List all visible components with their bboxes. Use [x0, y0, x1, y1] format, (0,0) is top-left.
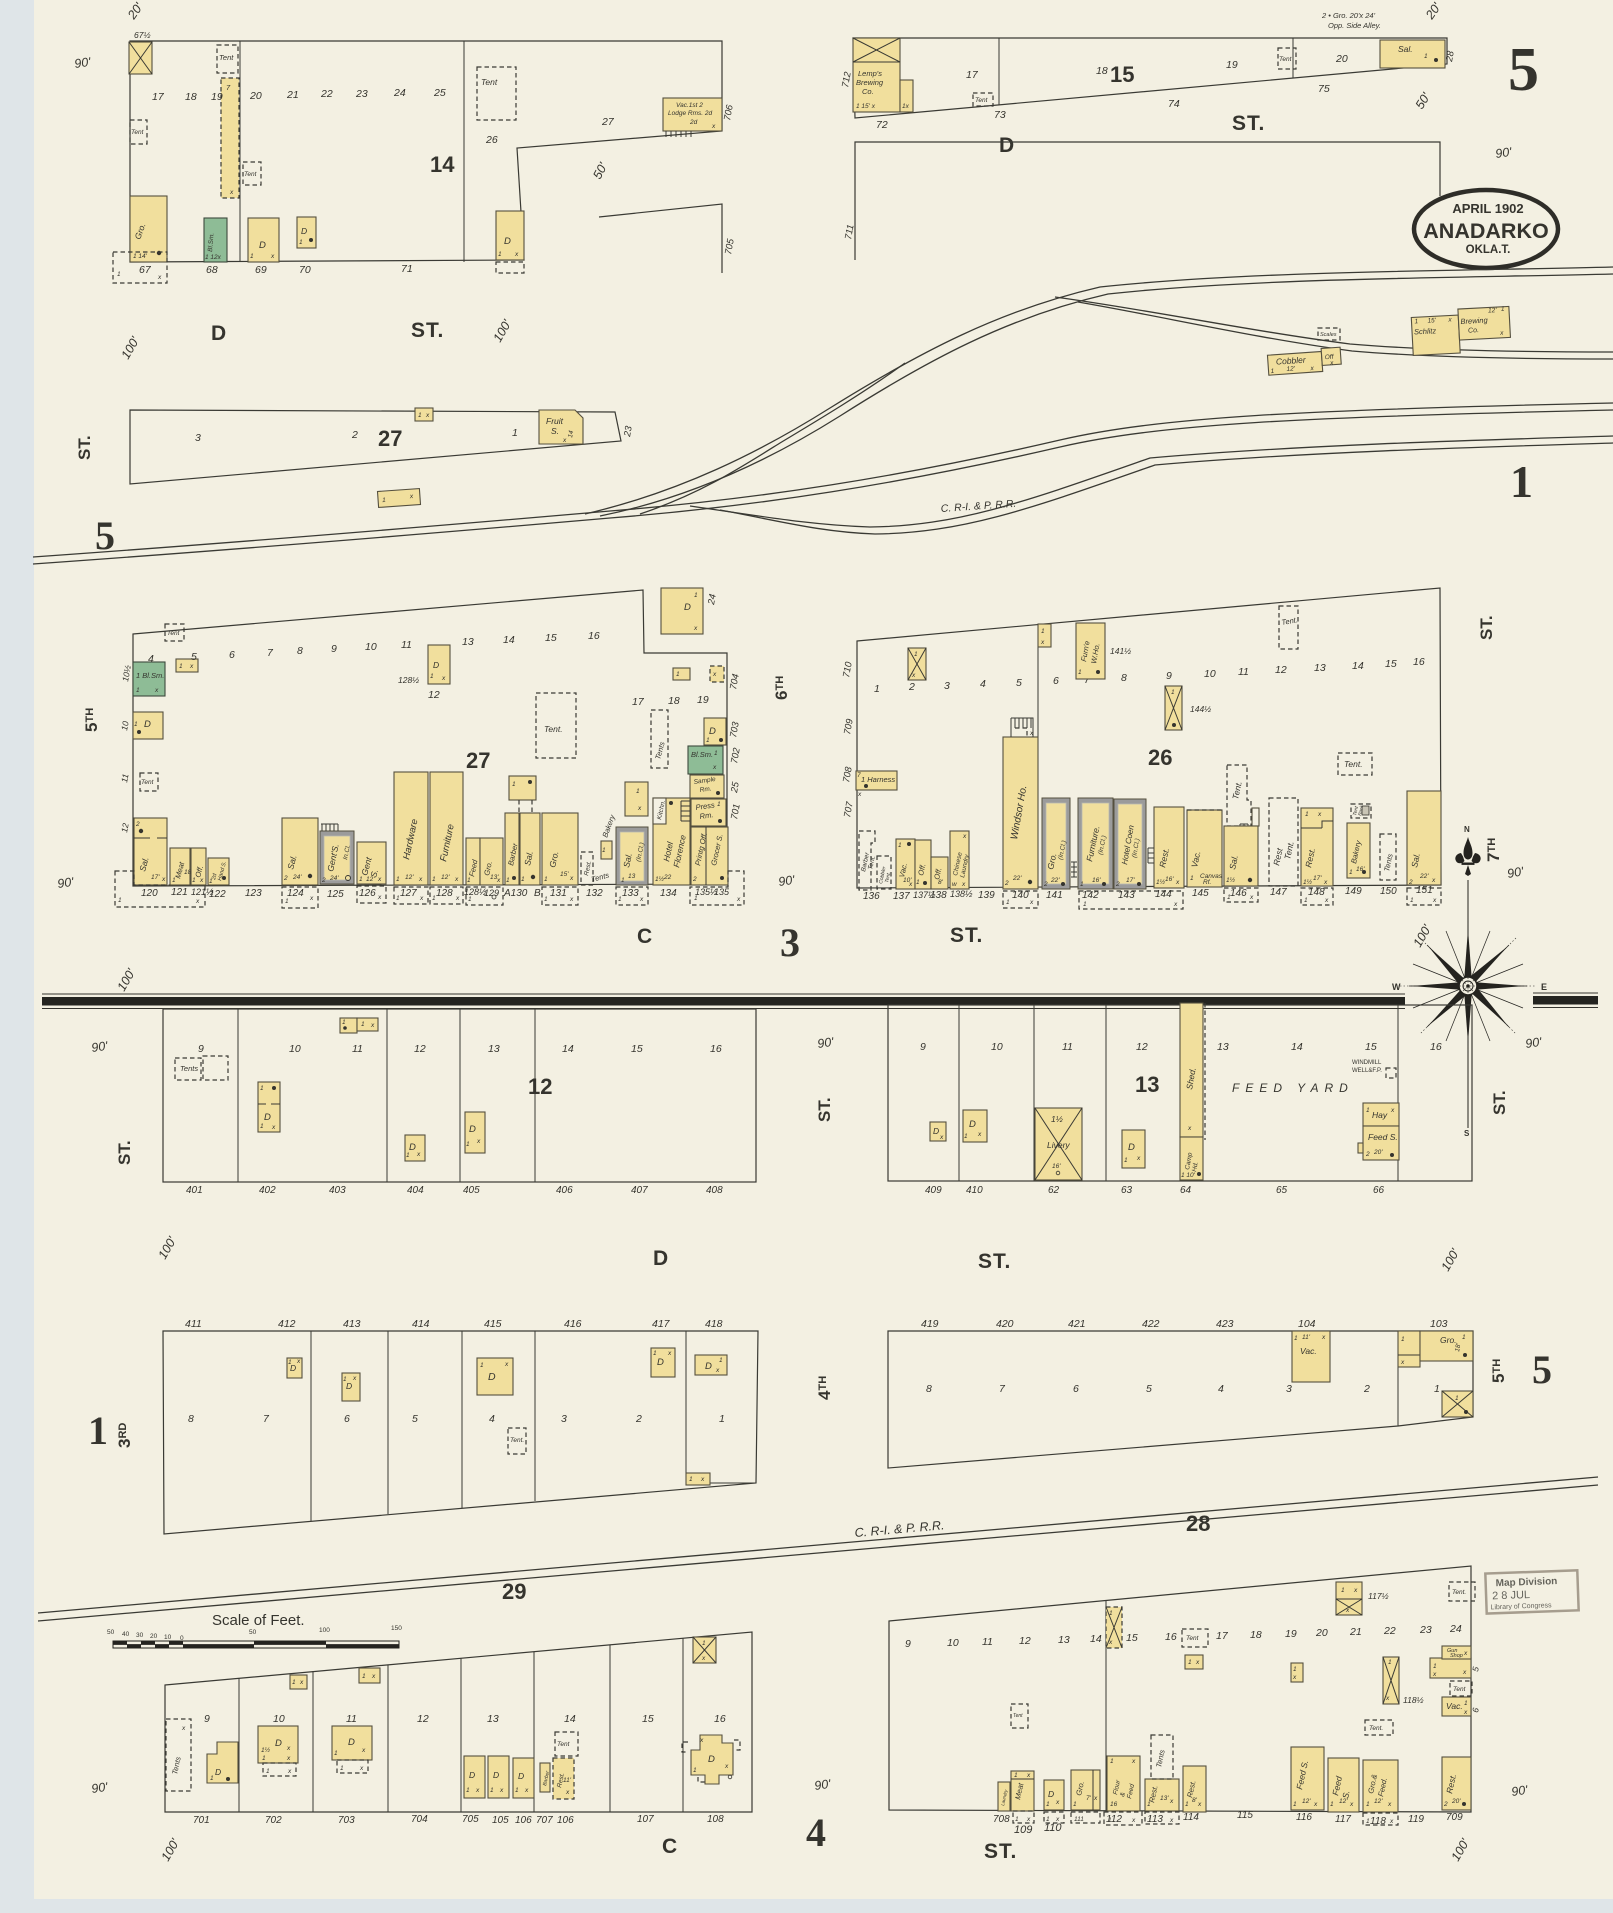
svg-text:1: 1	[1388, 1659, 1392, 1666]
svg-text:17: 17	[632, 696, 645, 708]
svg-text:73: 73	[994, 109, 1006, 121]
svg-text:40: 40	[122, 1631, 130, 1638]
svg-text:22': 22'	[1050, 877, 1060, 884]
svg-text:703: 703	[338, 1815, 355, 1826]
svg-text:65: 65	[1276, 1185, 1288, 1196]
svg-text:14: 14	[564, 1713, 576, 1725]
svg-text:D: D	[705, 1361, 712, 1372]
svg-text:24: 24	[706, 593, 719, 606]
svg-text:S: S	[1464, 1129, 1470, 1138]
svg-text:13: 13	[1314, 662, 1326, 674]
svg-text:1: 1	[1424, 53, 1428, 60]
svg-text:22: 22	[663, 874, 672, 881]
svg-text:14: 14	[1291, 1041, 1303, 1053]
svg-text:OKLA.T.: OKLA.T.	[1466, 244, 1511, 256]
svg-text:9: 9	[331, 643, 337, 655]
svg-text:109: 109	[1014, 1824, 1032, 1836]
svg-text:415: 415	[484, 1318, 502, 1330]
svg-text:1: 1	[1083, 901, 1087, 908]
svg-text:8: 8	[926, 1383, 932, 1395]
svg-text:1: 1	[1341, 1587, 1345, 1594]
svg-text:16': 16'	[1092, 877, 1101, 884]
svg-text:12': 12'	[1286, 365, 1296, 373]
svg-text:702: 702	[265, 1815, 282, 1826]
svg-text:6: 6	[1073, 1383, 1079, 1395]
svg-text:138½: 138½	[950, 889, 973, 899]
svg-text:D: D	[259, 240, 266, 251]
svg-text:ST.: ST.	[75, 435, 94, 460]
svg-text:72: 72	[876, 119, 888, 131]
svg-text:117½: 117½	[1368, 1591, 1389, 1601]
svg-text:20: 20	[1315, 1627, 1328, 1639]
svg-text:1: 1	[515, 1787, 519, 1794]
svg-text:18: 18	[185, 91, 197, 103]
svg-text:66: 66	[1373, 1185, 1385, 1196]
svg-text:D: D	[211, 322, 227, 345]
svg-text:113: 113	[1147, 1814, 1163, 1825]
svg-text:413: 413	[343, 1318, 361, 1330]
svg-text:Gro.: Gro.	[1440, 1335, 1457, 1345]
svg-text:16: 16	[1413, 656, 1425, 668]
svg-text:1: 1	[359, 876, 363, 883]
svg-text:103: 103	[1430, 1318, 1448, 1330]
svg-text:1: 1	[430, 673, 434, 680]
svg-text:9: 9	[1166, 670, 1172, 682]
svg-text:1: 1	[334, 1750, 338, 1757]
svg-text:1: 1	[1124, 1157, 1128, 1164]
svg-text:90': 90'	[1510, 1783, 1529, 1799]
svg-text:Co.: Co.	[1468, 327, 1479, 335]
svg-text:5: 5	[1016, 677, 1022, 689]
svg-text:9: 9	[905, 1638, 911, 1650]
svg-text:2: 2	[1004, 880, 1009, 887]
svg-text:Lemp's: Lemp's	[858, 69, 882, 78]
svg-text:12': 12'	[405, 874, 414, 881]
svg-text:1: 1	[717, 801, 721, 808]
svg-text:N: N	[1464, 825, 1470, 834]
svg-text:141: 141	[1046, 890, 1063, 901]
svg-text:24: 24	[393, 87, 406, 99]
svg-text:ST.: ST.	[1232, 112, 1265, 135]
svg-text:67: 67	[139, 264, 152, 276]
svg-text:Vac.: Vac.	[1446, 1701, 1463, 1711]
svg-text:ST.: ST.	[1490, 1090, 1509, 1115]
svg-text:1: 1	[210, 1775, 214, 1782]
svg-text:1: 1	[1188, 1659, 1192, 1666]
svg-text:27: 27	[601, 116, 615, 128]
svg-text:22: 22	[320, 88, 333, 100]
svg-text:D: D	[346, 1381, 352, 1391]
svg-text:1: 1	[1366, 1801, 1370, 1808]
svg-text:90': 90'	[1506, 864, 1525, 881]
svg-text:148: 148	[1308, 887, 1325, 898]
svg-text:3: 3	[561, 1413, 567, 1425]
svg-text:128: 128	[436, 888, 453, 899]
svg-text:Tent: Tent	[141, 779, 155, 786]
svg-text:19: 19	[211, 91, 223, 103]
svg-text:16': 16'	[1165, 876, 1174, 883]
svg-text:17': 17'	[151, 874, 160, 881]
svg-text:10: 10	[365, 641, 377, 653]
svg-text:D: D	[488, 1371, 496, 1383]
svg-text:27: 27	[466, 748, 490, 773]
svg-text:1: 1	[1078, 669, 1082, 676]
svg-text:1: 1	[521, 876, 525, 883]
svg-text:D: D	[684, 602, 691, 613]
svg-text:Scale of Feet.: Scale of Feet.	[212, 1612, 305, 1629]
svg-text:12: 12	[119, 822, 131, 833]
svg-text:408: 408	[706, 1185, 723, 1196]
svg-text:ST.: ST.	[115, 1140, 134, 1165]
svg-text:106: 106	[557, 1815, 574, 1826]
svg-text:90': 90'	[777, 873, 796, 889]
svg-text:ST.: ST.	[1477, 615, 1496, 640]
svg-text:416: 416	[564, 1318, 582, 1330]
svg-text:1: 1	[1464, 1700, 1468, 1707]
svg-text:704: 704	[411, 1814, 428, 1825]
svg-text:Tents: Tents	[180, 1064, 198, 1073]
svg-text:14: 14	[503, 634, 515, 646]
svg-text:Vac.1st 2: Vac.1st 2	[676, 102, 703, 109]
svg-text:13: 13	[462, 636, 474, 648]
svg-text:139: 139	[978, 890, 995, 901]
svg-text:423: 423	[1216, 1318, 1234, 1330]
svg-text:90': 90'	[56, 875, 75, 891]
svg-text:11': 11'	[1302, 1334, 1311, 1341]
svg-text:20: 20	[150, 1633, 158, 1640]
svg-text:1: 1	[480, 1362, 484, 1369]
svg-text:1: 1	[1434, 1383, 1440, 1395]
svg-text:Co.: Co.	[862, 87, 874, 96]
svg-text:1: 1	[1147, 1801, 1151, 1808]
svg-text:1: 1	[621, 877, 625, 884]
svg-text:1: 1	[506, 877, 510, 884]
svg-text:12: 12	[1019, 1635, 1031, 1647]
svg-text:106: 106	[515, 1815, 532, 1826]
svg-text:Tent: Tent	[1279, 56, 1293, 63]
svg-text:7: 7	[857, 772, 861, 779]
svg-text:20: 20	[1335, 53, 1348, 65]
svg-text:13: 13	[1058, 1634, 1070, 1646]
svg-text:111: 111	[1074, 1816, 1084, 1823]
svg-text:149: 149	[1345, 886, 1362, 897]
svg-text:20: 20	[249, 90, 262, 102]
svg-text:105: 105	[492, 1815, 509, 1826]
svg-text:A130: A130	[503, 888, 528, 899]
svg-text:11: 11	[352, 1043, 363, 1055]
svg-text:62: 62	[1048, 1185, 1060, 1196]
svg-text:1: 1	[467, 877, 471, 884]
svg-text:16: 16	[714, 1713, 726, 1725]
svg-text:15': 15'	[560, 871, 569, 878]
svg-text:22': 22'	[1012, 875, 1022, 882]
svg-text:90': 90'	[90, 1039, 109, 1055]
svg-text:115: 115	[1237, 1810, 1253, 1821]
svg-text:Tent: Tent	[244, 171, 258, 178]
svg-text:12': 12'	[1374, 1798, 1383, 1805]
svg-text:17': 17'	[1126, 877, 1135, 884]
svg-text:144: 144	[1155, 889, 1172, 900]
svg-text:1: 1	[1293, 1666, 1297, 1673]
svg-text:422: 422	[1142, 1318, 1160, 1330]
svg-text:9: 9	[198, 1043, 204, 1055]
svg-text:D: D	[969, 1119, 976, 1130]
svg-text:1: 1	[498, 251, 502, 258]
svg-text:1: 1	[914, 651, 918, 658]
svg-text:ST.: ST.	[984, 1840, 1017, 1863]
svg-text:ST.: ST.	[411, 319, 444, 342]
svg-text:16: 16	[1110, 1801, 1118, 1808]
svg-text:128½: 128½	[398, 675, 419, 685]
svg-text:1: 1	[1293, 1801, 1297, 1808]
svg-text:FEED YARD: FEED YARD	[1232, 1081, 1354, 1095]
svg-text:1: 1	[406, 1152, 410, 1159]
svg-text:8: 8	[188, 1413, 194, 1425]
svg-text:74: 74	[1168, 98, 1180, 110]
svg-text:407: 407	[631, 1185, 648, 1196]
svg-text:15: 15	[545, 632, 557, 644]
svg-text:116: 116	[1296, 1812, 1312, 1823]
svg-text:8': 8'	[1192, 1797, 1198, 1804]
svg-text:12: 12	[528, 1074, 552, 1099]
svg-text:110: 110	[1044, 1822, 1062, 1834]
svg-text:1½: 1½	[1051, 1114, 1063, 1124]
svg-text:122: 122	[209, 889, 226, 900]
svg-text:1: 1	[1110, 1758, 1114, 1765]
svg-text:D: D	[264, 1112, 271, 1123]
svg-text:13': 13'	[1160, 1795, 1169, 1802]
svg-text:1: 1	[1455, 1395, 1459, 1402]
svg-text:4: 4	[980, 678, 986, 690]
svg-text:23: 23	[1419, 1624, 1432, 1636]
svg-text:10: 10	[947, 1637, 959, 1649]
svg-text:17: 17	[1216, 1630, 1229, 1642]
svg-text:3: 3	[944, 680, 950, 692]
svg-text:Fruit: Fruit	[546, 416, 564, 426]
svg-text:12: 12	[1275, 664, 1287, 676]
svg-text:90': 90'	[90, 1780, 109, 1796]
svg-text:13: 13	[1217, 1041, 1229, 1053]
svg-text:150: 150	[391, 1625, 402, 1632]
svg-text:1: 1	[702, 1640, 706, 1647]
svg-text:Tent.: Tent.	[544, 724, 563, 734]
svg-text:1: 1	[1349, 869, 1353, 876]
svg-text:112: 112	[1106, 1814, 1122, 1825]
svg-text:Vac.: Vac.	[1300, 1346, 1317, 1356]
svg-text:23: 23	[355, 88, 368, 100]
svg-text:1: 1	[653, 1350, 657, 1357]
svg-text:417: 417	[652, 1318, 671, 1330]
svg-text:C: C	[662, 1835, 678, 1858]
svg-text:107: 107	[637, 1814, 654, 1825]
svg-text:Tent: Tent	[975, 97, 989, 104]
svg-text:Tent.: Tent.	[1369, 1725, 1383, 1732]
svg-text:13: 13	[487, 1713, 499, 1725]
svg-text:418: 418	[705, 1318, 723, 1330]
svg-text:13: 13	[1135, 1072, 1159, 1097]
svg-text:2 • Gro. 20'x 24': 2 • Gro. 20'x 24'	[1321, 11, 1376, 20]
svg-text:D: D	[215, 1767, 221, 1777]
svg-text:1: 1	[602, 847, 606, 854]
svg-text:68: 68	[206, 264, 218, 276]
svg-text:1: 1	[118, 897, 122, 904]
svg-text:15: 15	[1126, 1632, 1138, 1644]
svg-text:19: 19	[697, 694, 709, 706]
svg-text:Tent: Tent	[557, 1741, 571, 1748]
svg-text:1: 1	[343, 1376, 347, 1383]
svg-text:100: 100	[319, 1627, 330, 1634]
svg-text:90': 90'	[1494, 145, 1513, 161]
svg-text:5: 5	[1508, 36, 1539, 104]
svg-text:104: 104	[1298, 1318, 1316, 1330]
svg-text:D: D	[504, 236, 511, 247]
svg-text:1: 1	[266, 1768, 270, 1775]
svg-text:134: 134	[660, 888, 677, 899]
svg-text:Tent: Tent	[1013, 1713, 1023, 1719]
svg-text:114: 114	[1183, 1812, 1199, 1823]
svg-text:26: 26	[1148, 745, 1172, 770]
svg-text:2: 2	[635, 1413, 642, 1425]
svg-text:12': 12'	[1339, 1798, 1348, 1805]
svg-text:D: D	[999, 134, 1015, 157]
svg-text:Schlitz: Schlitz	[1414, 326, 1437, 336]
svg-text:14: 14	[430, 152, 455, 177]
svg-text:1½: 1½	[261, 1746, 271, 1754]
svg-text:D: D	[653, 1247, 669, 1270]
svg-text:Brewing: Brewing	[1460, 316, 1488, 326]
svg-text:11': 11'	[563, 1777, 572, 1784]
svg-text:D: D	[933, 1126, 939, 1136]
svg-text:16: 16	[1165, 1631, 1177, 1643]
svg-text:121: 121	[171, 887, 188, 898]
svg-text:1½: 1½	[1303, 878, 1313, 886]
svg-text:12: 12	[1136, 1041, 1148, 1053]
svg-text:1 Bl.Sm.: 1 Bl.Sm.	[136, 671, 164, 680]
svg-text:3: 3	[1286, 1383, 1292, 1395]
svg-text:2: 2	[135, 821, 140, 828]
svg-text:1: 1	[134, 721, 138, 728]
svg-text:136: 136	[863, 891, 880, 902]
svg-text:1: 1	[250, 253, 254, 260]
svg-text:19: 19	[1285, 1628, 1297, 1640]
svg-text:Tent.: Tent.	[510, 1437, 524, 1444]
svg-text:1: 1	[299, 239, 303, 246]
svg-text:701: 701	[193, 1815, 210, 1826]
svg-text:12: 12	[414, 1043, 426, 1055]
svg-text:2: 2	[1115, 881, 1120, 888]
svg-text:12: 12	[428, 689, 440, 701]
svg-text:D: D	[709, 726, 716, 737]
svg-text:142: 142	[1082, 890, 1099, 901]
svg-text:50: 50	[249, 1629, 257, 1636]
svg-text:1: 1	[136, 687, 140, 694]
svg-text:2d: 2d	[689, 119, 698, 126]
svg-text:1: 1	[1366, 1107, 1370, 1114]
svg-text:1: 1	[490, 1787, 494, 1794]
svg-text:1 15' x: 1 15' x	[856, 103, 876, 110]
svg-text:145: 145	[1192, 888, 1209, 899]
svg-text:1: 1	[292, 1679, 296, 1686]
svg-text:Tent.: Tent.	[1452, 1589, 1466, 1596]
svg-text:Shop: Shop	[1450, 1653, 1463, 1659]
svg-text:W: W	[1392, 982, 1401, 992]
svg-text:405: 405	[463, 1185, 480, 1196]
svg-text:150: 150	[1380, 886, 1397, 897]
svg-text:1: 1	[1041, 628, 1045, 635]
svg-text:22: 22	[1383, 1625, 1396, 1637]
svg-text:144½: 144½	[1190, 704, 1211, 714]
svg-text:29: 29	[502, 1579, 526, 1604]
svg-text:Feed S.: Feed S.	[1368, 1132, 1398, 1142]
svg-text:709: 709	[1446, 1812, 1463, 1823]
svg-text:406: 406	[556, 1185, 573, 1196]
svg-text:1: 1	[694, 592, 698, 599]
svg-text:D: D	[144, 719, 151, 730]
svg-text:16: 16	[588, 630, 600, 642]
svg-text:D: D	[275, 1738, 282, 1749]
svg-text:1: 1	[432, 876, 436, 883]
svg-text:69: 69	[255, 264, 267, 276]
svg-text:2: 2	[1408, 879, 1413, 886]
svg-text:Sal.: Sal.	[1398, 44, 1413, 54]
svg-text:401: 401	[186, 1185, 203, 1196]
svg-text:14: 14	[1352, 660, 1364, 672]
svg-text:18: 18	[1096, 65, 1108, 77]
svg-text:16: 16	[710, 1043, 722, 1055]
svg-text:123: 123	[245, 888, 262, 899]
svg-text:146: 146	[1230, 888, 1247, 899]
svg-text:Tent: Tent	[167, 630, 181, 637]
svg-text:11: 11	[401, 639, 412, 651]
svg-text:26: 26	[485, 134, 498, 146]
svg-text:1: 1	[1080, 881, 1084, 888]
svg-text:1: 1	[285, 898, 289, 905]
svg-text:3: 3	[780, 920, 800, 965]
svg-text:B: B	[534, 888, 541, 899]
svg-text:Tent: Tent	[219, 53, 234, 62]
svg-text:Tent: Tent	[1453, 1686, 1467, 1693]
svg-text:1: 1	[192, 877, 196, 884]
svg-text:117: 117	[1335, 1814, 1351, 1825]
svg-text:1: 1	[209, 878, 213, 885]
svg-text:Livery: Livery	[1047, 1140, 1070, 1150]
svg-text:1: 1	[1433, 1663, 1437, 1670]
svg-text:18: 18	[668, 695, 680, 707]
svg-text:12': 12'	[366, 876, 375, 883]
svg-text:1 10': 1 10'	[1181, 1172, 1196, 1179]
svg-text:1: 1	[1294, 1335, 1298, 1342]
svg-text:17: 17	[152, 91, 165, 103]
svg-text:1: 1	[898, 842, 902, 849]
svg-text:90': 90'	[73, 55, 92, 71]
svg-text:15: 15	[631, 1043, 643, 1055]
svg-text:2: 2	[1363, 1383, 1370, 1395]
svg-text:421: 421	[1068, 1318, 1086, 1330]
svg-text:15': 15'	[1427, 317, 1437, 324]
svg-text:20': 20'	[1373, 1149, 1383, 1156]
svg-text:10: 10	[273, 1713, 285, 1725]
svg-text:1: 1	[512, 781, 516, 788]
svg-text:D: D	[348, 1737, 355, 1748]
svg-text:Opp. Side Alley.: Opp. Side Alley.	[1328, 21, 1381, 30]
svg-text:1: 1	[1046, 1801, 1050, 1808]
svg-text:2 8 JUL: 2 8 JUL	[1492, 1589, 1530, 1602]
svg-text:16: 16	[1430, 1041, 1442, 1053]
svg-text:4: 4	[489, 1413, 495, 1425]
svg-text:1: 1	[466, 1787, 470, 1794]
svg-text:1: 1	[1462, 1334, 1466, 1341]
svg-text:1x: 1x	[902, 103, 910, 110]
